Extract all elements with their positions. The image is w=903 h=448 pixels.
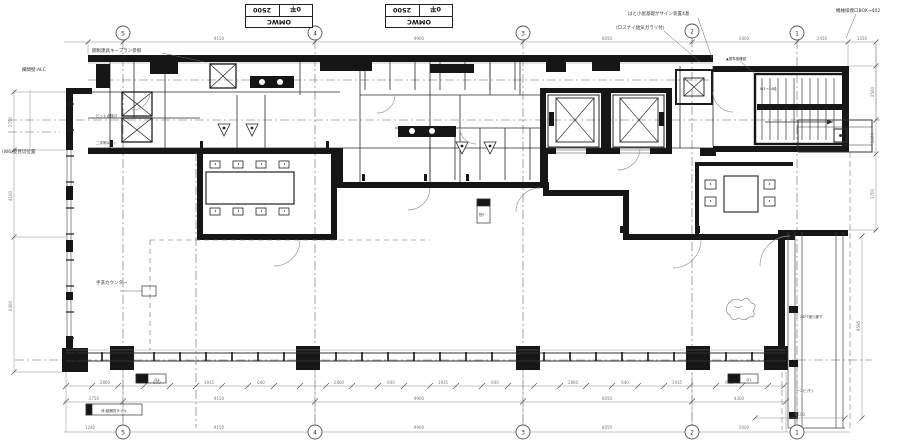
svg-text:640: 640 — [257, 380, 265, 385]
grid-bubble-bottom-5: 5 — [121, 430, 125, 437]
grid-bubble-top-4: 4 — [313, 31, 317, 38]
svg-text:5000: 5000 — [739, 36, 750, 41]
note-route: 二次側ルート — [96, 140, 117, 145]
note-stair-steps: W1→14段 — [760, 86, 777, 91]
svg-text:1935: 1935 — [204, 380, 215, 385]
svg-text:6400: 6400 — [8, 300, 13, 311]
right-corridor — [782, 152, 850, 430]
svg-text:6100: 6100 — [795, 412, 806, 417]
elevator-bank — [540, 88, 672, 154]
grid-bubble-top-2: 2 — [690, 29, 694, 36]
svg-text:4100: 4100 — [8, 190, 13, 201]
svg-text:1935: 1935 — [672, 380, 683, 385]
meeting-table — [724, 176, 758, 212]
stamp-dim-cell: 2500 — [386, 5, 419, 16]
note-wall-joint: (W6)壁見切位置 — [2, 148, 36, 155]
svg-text:1350: 1350 — [857, 36, 868, 41]
stamp-grade-cell: 0平 — [279, 5, 313, 16]
note-corridor: 2SFT渡り廊下 — [800, 314, 823, 319]
stamp-name-cell: OMWC — [246, 17, 312, 28]
stamp-name-cell: OMWC — [386, 17, 452, 28]
grid-bubble-bottom-2: 2 — [690, 430, 694, 437]
grid-bubbles — [116, 24, 804, 439]
svg-text:2860: 2860 — [568, 380, 579, 385]
grid-bubble-bottom-4: 4 — [313, 430, 317, 437]
stamp-table-left: 2500 0平 OMWC — [245, 4, 313, 28]
note-office-tag: 担F — [479, 212, 485, 217]
svg-text:1240: 1240 — [85, 425, 96, 430]
note-corridor-2: ーニビ(干) — [796, 388, 813, 393]
svg-text:9900: 9900 — [414, 36, 425, 41]
conference-room — [206, 161, 294, 215]
tag-g1-left: G1 — [155, 378, 160, 382]
svg-text:9595: 9595 — [856, 320, 861, 331]
svg-text:4300: 4300 — [734, 396, 745, 401]
exterior-walls — [62, 55, 849, 372]
svg-text:9900: 9900 — [414, 396, 425, 401]
grid-centerlines — [8, 38, 880, 426]
conference-table — [206, 172, 294, 204]
grid-bubble-bottom-1: 1 — [795, 430, 799, 437]
meeting-room — [705, 176, 775, 212]
svg-text:1935: 1935 — [438, 380, 449, 385]
svg-text:8050: 8050 — [602, 36, 613, 41]
note-counter: 手洗カウンター — [96, 279, 128, 286]
svg-text:2450: 2450 — [817, 36, 828, 41]
svg-text:2750: 2750 — [89, 396, 100, 401]
note-floor-finish: 床:磁器質タイル — [101, 408, 127, 413]
svg-text:8050: 8050 — [602, 396, 613, 401]
stamp-grade-cell: 0平 — [419, 5, 453, 16]
south-glazing — [66, 350, 786, 361]
svg-text:640: 640 — [491, 380, 499, 385]
grid-bubble-bottom-3: 3 — [521, 430, 525, 437]
note-roof-sign: はと小屋基礎がサイン装置4基 — [628, 10, 690, 17]
revision-cloud — [726, 298, 755, 319]
note-alc: 欄間壁:ALC — [22, 66, 46, 73]
svg-text:9900: 9900 — [414, 425, 425, 430]
stamp-dim-cell: 2500 — [246, 5, 279, 16]
elevator-shaft-1 — [548, 95, 599, 147]
annotation-tags — [86, 199, 758, 415]
svg-text:3700: 3700 — [870, 188, 875, 199]
svg-text:9150: 9150 — [214, 396, 225, 401]
note-keyplan: 鋼製建具キープラン参照 — [92, 47, 142, 54]
core-walls — [88, 148, 795, 240]
note-pit: ピット点検口 — [96, 113, 117, 118]
staircase — [755, 74, 845, 144]
svg-text:2860: 2860 — [100, 380, 111, 385]
grid-bubble-top-1: 1 — [795, 31, 799, 38]
note-louver: (ロスナイ給気ガラリ付) — [616, 24, 665, 31]
svg-text:2500: 2500 — [870, 86, 875, 97]
stamp-table-right: 2500 0平 OMWC — [385, 4, 453, 28]
svg-text:640: 640 — [387, 380, 395, 385]
grid-bubble-top-5: 5 — [121, 31, 125, 38]
elevator-shaft-2 — [613, 95, 664, 147]
note-smoke-box: 機械排煙口BOX→402 — [836, 7, 880, 14]
svg-text:9150: 9150 — [214, 425, 225, 430]
svg-text:9150: 9150 — [214, 36, 225, 41]
floor-plan-sheet: 9150 9900 8050 5000 2450 1350 2860 640 1… — [0, 0, 903, 448]
note-datum: ▲基準墨確認 — [726, 56, 747, 61]
svg-text:640: 640 — [621, 380, 629, 385]
floor-plan-drawing: 9150 9900 8050 5000 2450 1350 2860 640 1… — [0, 0, 903, 448]
svg-text:2750: 2750 — [8, 116, 13, 127]
tag-g1-right: G1 — [747, 378, 752, 382]
svg-text:2860: 2860 — [334, 380, 345, 385]
svg-text:5000: 5000 — [739, 425, 750, 430]
svg-text:1600: 1600 — [870, 132, 875, 143]
grid-bubble-top-3: 3 — [521, 31, 525, 38]
svg-text:8050: 8050 — [602, 425, 613, 430]
